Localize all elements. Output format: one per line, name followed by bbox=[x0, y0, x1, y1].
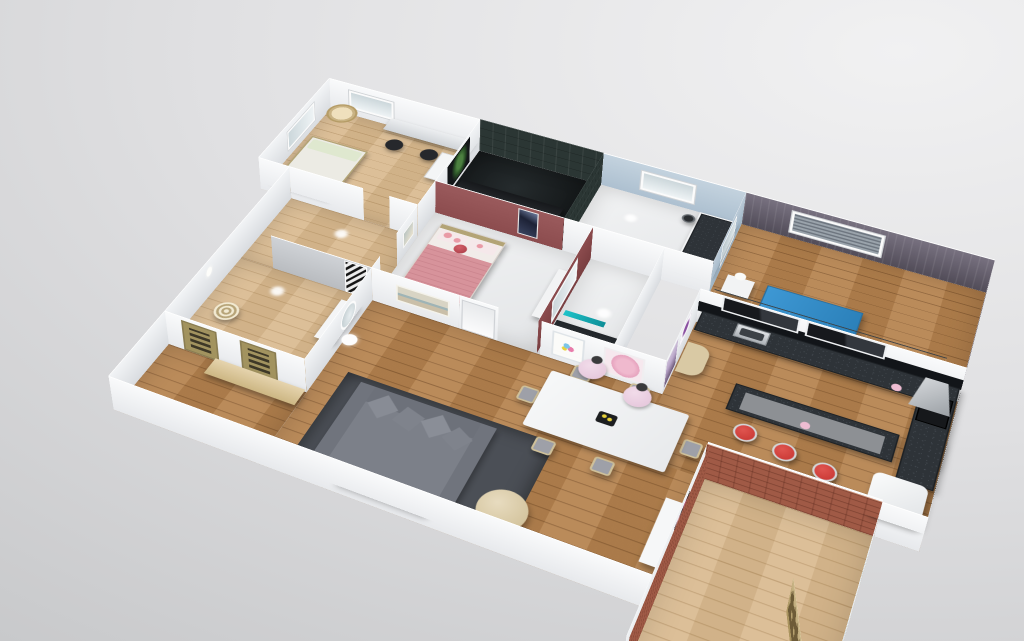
door-glass-slats bbox=[189, 328, 212, 354]
wall-sconce bbox=[206, 265, 212, 279]
poster bbox=[517, 208, 539, 239]
apartment-plan bbox=[39, 109, 986, 641]
picture-frame bbox=[403, 219, 414, 248]
viewport bbox=[0, 0, 1024, 641]
painting-ballerina bbox=[551, 330, 585, 364]
render-stage bbox=[0, 0, 1024, 641]
painting-flower bbox=[602, 347, 646, 385]
